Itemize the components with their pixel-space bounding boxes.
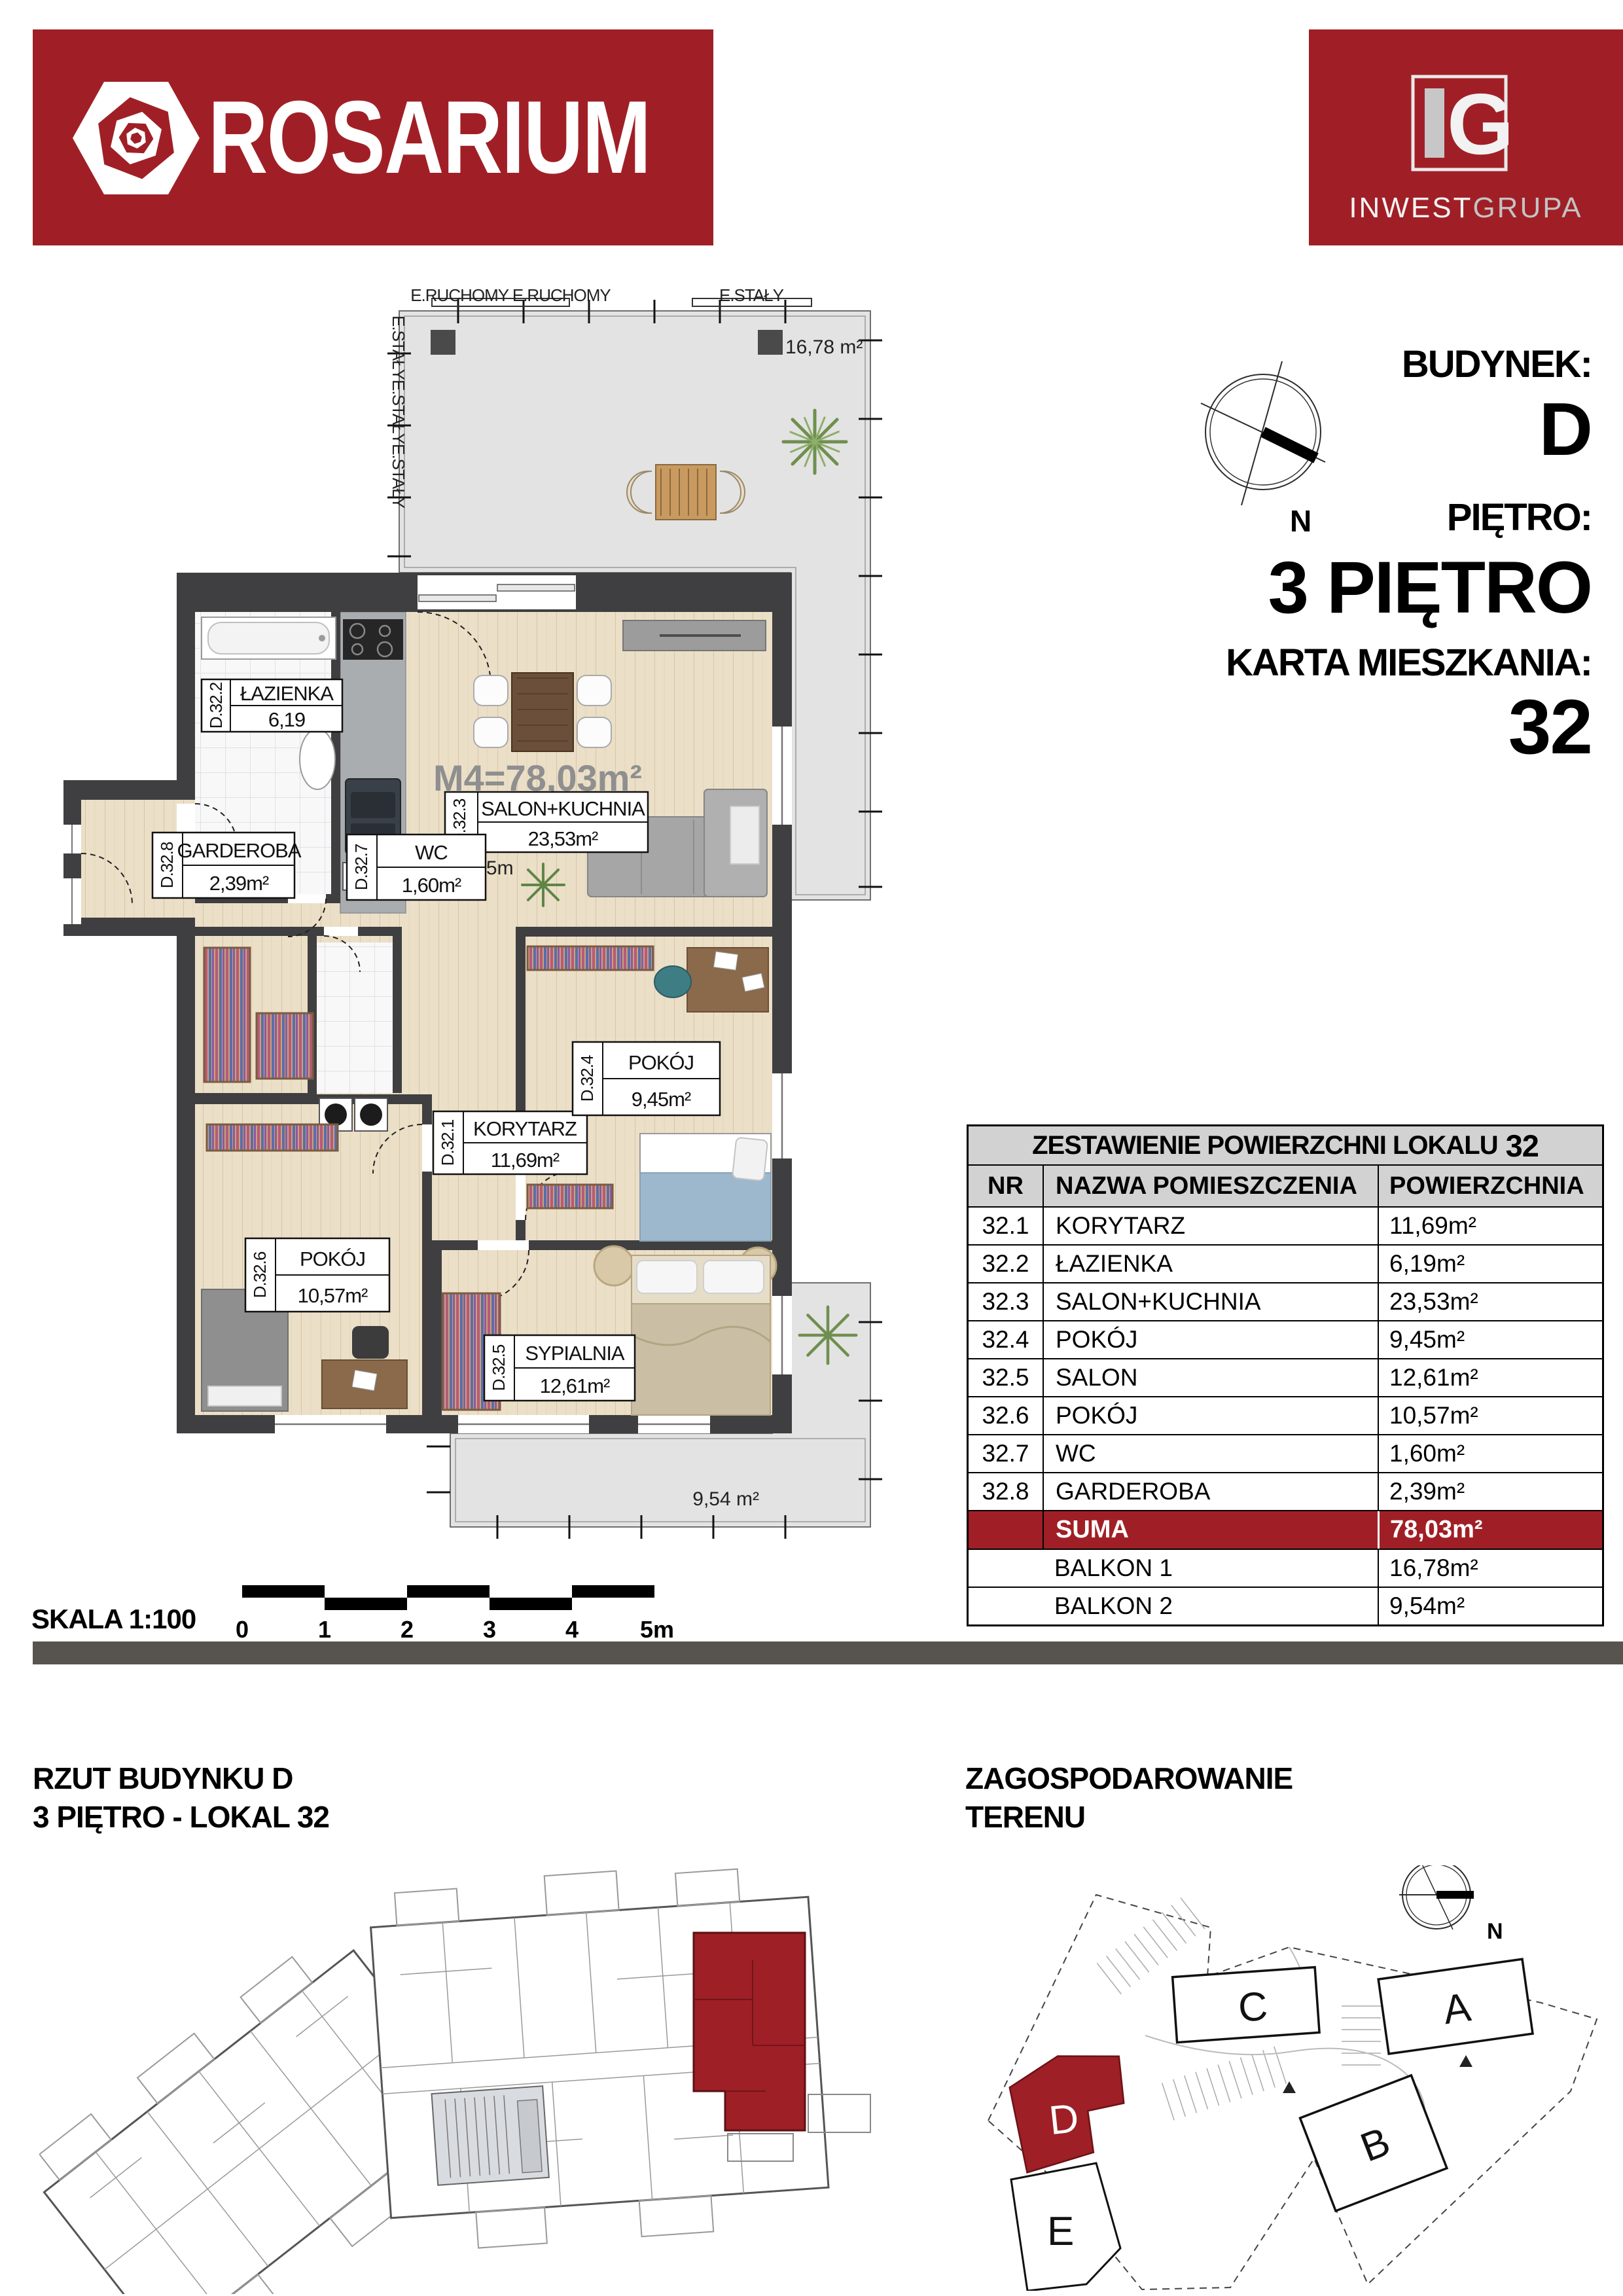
table-row: 32.3 SALON+KUCHNIA 23,53m² (969, 1282, 1602, 1320)
salon-plant-icon (522, 864, 564, 906)
site-plan: N (949, 1865, 1623, 2291)
area-table: ZESTAWIENIE POWIERZCHNI LOKALU 32 NR NAZ… (967, 1124, 1604, 1626)
edge-label-top-1: E.RUCHOMY E.RUCHOMY (410, 285, 611, 305)
site-building-d: D (1007, 2050, 1130, 2174)
svg-text:KORYTARZ: KORYTARZ (473, 1117, 577, 1140)
svg-text:SALON+KUCHNIA: SALON+KUCHNIA (481, 797, 645, 820)
table-row: 32.1 KORYTARZ 11,69m² (969, 1206, 1602, 1244)
svg-text:SYPIALNIA: SYPIALNIA (525, 1342, 625, 1365)
floor-value: 3 PIĘTRO (1268, 551, 1592, 624)
room-label-korytarz: D.32.1 KORYTARZ 11,69m² (433, 1111, 587, 1174)
building-plan-title: RZUT BUDYNKU D 3 PIĘTRO - LOKAL 32 (33, 1759, 329, 1837)
site-plan-title: ZAGOSPODAROWANIE TERENU (965, 1759, 1293, 1837)
room-label-pokoj6: D.32.6 POKÓJ 10,57m² (245, 1238, 389, 1312)
card-value: 32 (1508, 689, 1592, 766)
svg-text:D.32.5: D.32.5 (489, 1344, 508, 1391)
svg-text:D.32.1: D.32.1 (438, 1119, 457, 1166)
svg-text:ŁAZIENKA: ŁAZIENKA (240, 682, 334, 705)
col-nr: NR (969, 1166, 1043, 1206)
building-value: D (1539, 393, 1592, 467)
svg-text:D.32.4: D.32.4 (577, 1055, 597, 1102)
svg-text:POKÓJ: POKÓJ (628, 1051, 694, 1074)
svg-text:9,45m²: 9,45m² (632, 1088, 691, 1111)
table-row: 32.8 GARDEROBA 2,39m² (969, 1472, 1602, 1510)
area-table-header: NR NAZWA POMIESZCZENIA POWIERZCHNIA (969, 1164, 1602, 1206)
table-row: 32.6 POKÓJ 10,57m² (969, 1396, 1602, 1434)
room-label-sypialnia: D.32.5 SYPIALNIA 12,61m² (484, 1335, 635, 1401)
balcony-1-area: 16,78 m² (785, 336, 863, 358)
table-row: 32.7 WC 1,60m² (969, 1434, 1602, 1472)
svg-text:WC: WC (415, 841, 448, 864)
svg-text:10,57m²: 10,57m² (298, 1284, 368, 1307)
svg-text:1,60m²: 1,60m² (402, 874, 461, 897)
rose-logo-icon (71, 81, 202, 196)
card-label: KARTA MIESZKANIA: (1226, 644, 1592, 682)
company-name-part1: INWEST (1349, 192, 1472, 224)
svg-text:6,19: 6,19 (268, 708, 305, 731)
svg-text:POKÓJ: POKÓJ (300, 1247, 365, 1270)
brand-name: ROSARIUM (208, 79, 650, 197)
room-label-wc: D.32.7 WC 1,60m² (347, 834, 486, 900)
svg-text:D.32.8: D.32.8 (157, 842, 177, 888)
svg-text:12,61m²: 12,61m² (540, 1374, 610, 1397)
svg-text:G: G (1447, 76, 1508, 172)
site-building-b: B (1300, 2075, 1447, 2211)
svg-text:2: 2 (401, 1616, 414, 1643)
table-balkon-row: BALKON 2 9,54m² (969, 1587, 1602, 1624)
balcony-2-area: 9,54 m² (692, 1488, 759, 1510)
apartment-card-page: ROSARIUM G INWESTGRUPA N BUDYNEK: D PIĘT… (0, 0, 1623, 2296)
wc-floor (308, 942, 393, 1093)
stairwell (432, 2086, 549, 2185)
svg-text:0: 0 (236, 1616, 249, 1643)
room-label-garderoba: D.32.8 GARDEROBA 2,39m² (152, 833, 302, 898)
area-table-title-number: 32 (1506, 1128, 1539, 1164)
svg-text:2,39m²: 2,39m² (209, 872, 269, 895)
svg-text:D.32.7: D.32.7 (351, 844, 371, 890)
col-area: POWIERZCHNIA (1378, 1166, 1602, 1206)
compass-icon: N (1194, 360, 1338, 543)
svg-text:D: D (1047, 2096, 1081, 2144)
area-table-title: ZESTAWIENIE POWIERZCHNI LOKALU 32 (969, 1126, 1602, 1164)
building-floor-overview (39, 1862, 877, 2294)
col-name: NAZWA POMIESZCZENIA (1043, 1166, 1378, 1206)
floor-label: PIĘTRO: (1447, 499, 1592, 537)
apartment-floorplan: 16,78 m² 9,54 m² (26, 275, 1008, 1662)
table-row: 32.4 POKÓJ 9,45m² (969, 1320, 1602, 1358)
site-building-e: E (1011, 2163, 1120, 2291)
svg-text:3: 3 (483, 1616, 496, 1643)
compass-north-label: N (1290, 504, 1311, 538)
table-row: 32.5 SALON 12,61m² (969, 1358, 1602, 1396)
room-label-lazienka: D.32.2 ŁAZIENKA 6,19 (202, 679, 342, 732)
svg-text:D.32.2: D.32.2 (206, 682, 226, 728)
svg-text:D.32.6: D.32.6 (250, 1251, 270, 1298)
site-compass-icon: N (1399, 1865, 1503, 1944)
svg-text:1: 1 (318, 1616, 331, 1643)
company-banner: G INWESTGRUPA (1309, 29, 1623, 245)
table-balkon-row: BALKON 1 16,78m² (969, 1549, 1602, 1587)
svg-text:4: 4 (565, 1616, 579, 1643)
table-suma-row: SUMA 78,03m² (969, 1510, 1602, 1549)
svg-text:GARDEROBA: GARDEROBA (177, 839, 301, 862)
site-building-c: C (1173, 1967, 1319, 2043)
site-compass-north-label: N (1487, 1919, 1503, 1944)
company-name: INWESTGRUPA (1309, 192, 1623, 224)
edge-label-top-2: E.STAŁY (719, 285, 784, 305)
edge-label-left: E.STAŁYE.STAŁYE.STAŁY (389, 315, 408, 509)
svg-text:C: C (1237, 1984, 1269, 2031)
scale-label: SKALA 1:100 (31, 1604, 196, 1634)
room-label-pokoj4: D.32.4 POKÓJ 9,45m² (573, 1042, 720, 1115)
svg-text:23,53m²: 23,53m² (528, 827, 598, 850)
ig-logo-icon: G (1410, 74, 1508, 172)
svg-text:E: E (1047, 2209, 1074, 2254)
brand-banner: ROSARIUM (33, 29, 713, 245)
site-building-a: A (1378, 1959, 1533, 2054)
company-name-part2: GRUPA (1472, 192, 1582, 224)
scale-bar: SKALA 1:100 0 1 2 3 4 5m (31, 1585, 674, 1643)
tv-unit (623, 620, 766, 651)
svg-text:11,69m²: 11,69m² (491, 1149, 560, 1172)
table-row: 32.2 ŁAZIENKA 6,19m² (969, 1244, 1602, 1282)
area-table-title-text: ZESTAWIENIE POWIERZCHNI LOKALU (1032, 1131, 1497, 1160)
terrace-plant-icon-2 (800, 1307, 856, 1363)
svg-text:5m: 5m (640, 1616, 674, 1643)
building-label: BUDYNEK: (1402, 346, 1592, 384)
section-divider (33, 1641, 1623, 1664)
